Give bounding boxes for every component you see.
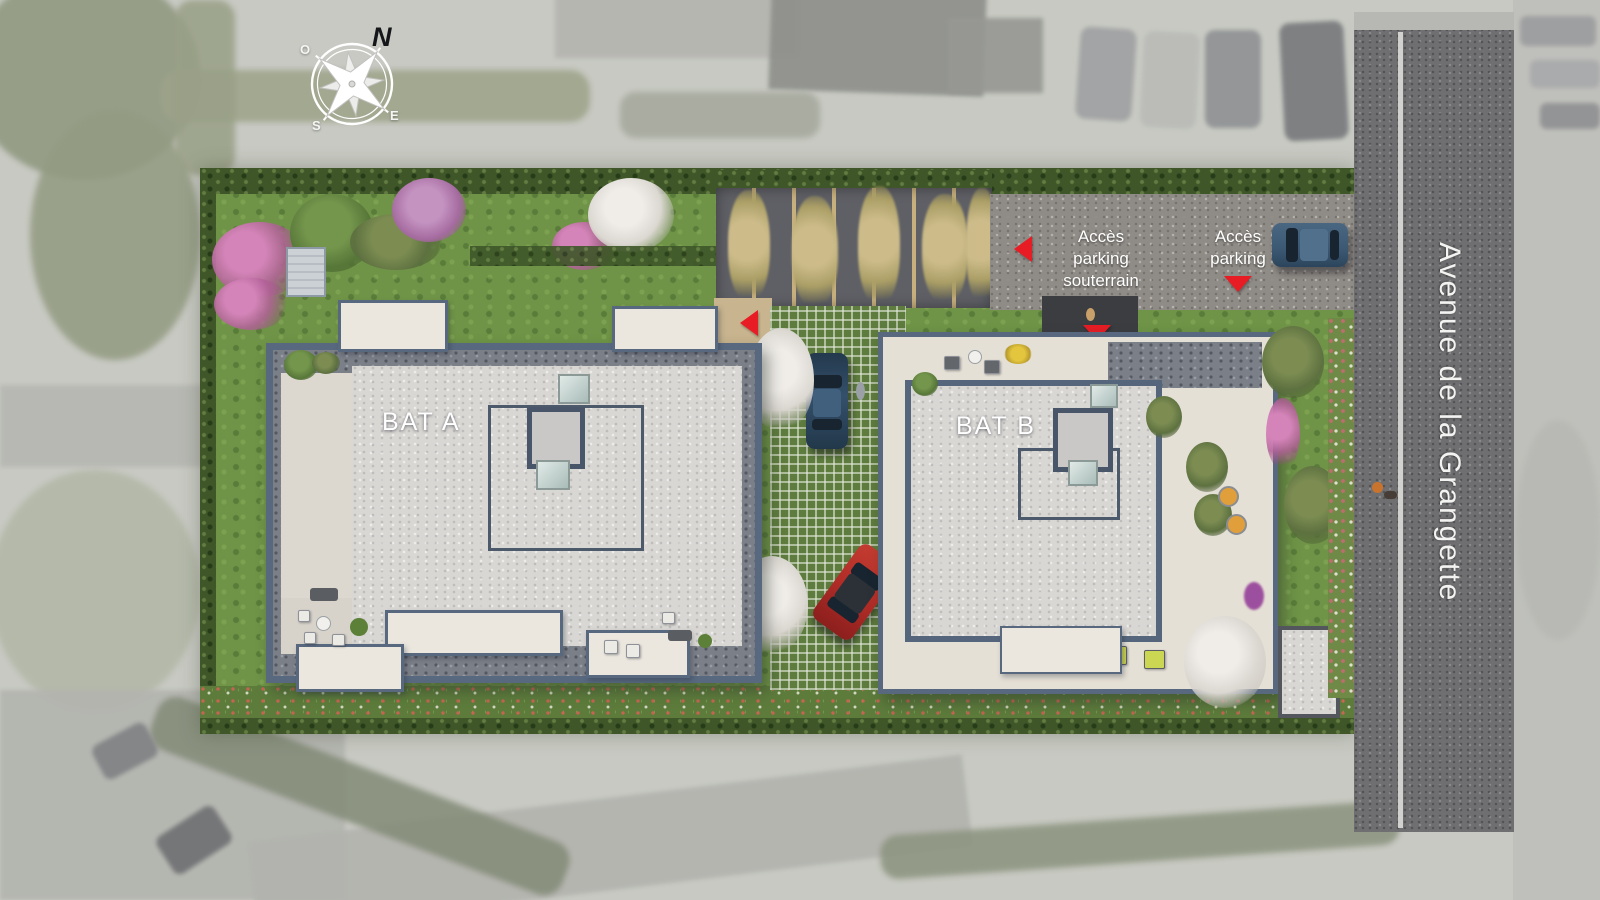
- pedestrian-with-dog: [1372, 482, 1383, 493]
- roadside-tree: [1262, 326, 1324, 398]
- access-underground-arrow-icon: [1014, 236, 1032, 262]
- pink-flowering-tree: [392, 178, 466, 242]
- garden-hedge-row: [470, 246, 720, 266]
- terrace-sofa: [310, 588, 338, 601]
- terrace-chair: [984, 360, 1000, 374]
- skylight: [1090, 384, 1118, 408]
- site-plan-image: Accès parking souterrain Accès parking: [0, 0, 1600, 900]
- building-b-label: BAT B: [956, 412, 1036, 441]
- background-parked-car: [1530, 60, 1600, 88]
- deck-tree: [1146, 396, 1182, 438]
- background-house-roof: [555, 0, 800, 58]
- skylight: [536, 460, 570, 490]
- background-parked-car: [1075, 26, 1137, 122]
- compass-west-label: O: [300, 42, 310, 57]
- compass-east-label: E: [390, 108, 399, 123]
- terrace-slab: [338, 300, 448, 352]
- background-parked-car: [1205, 30, 1261, 128]
- access-parking-arrow-icon: [1224, 276, 1252, 292]
- dog: [1384, 491, 1397, 499]
- road-top-sidewalk: [1354, 12, 1514, 30]
- terrace-table: [968, 350, 982, 364]
- pedestrian: [856, 382, 865, 400]
- parking-hedge: [716, 170, 992, 190]
- pergola-vine: [858, 186, 900, 306]
- lounge-chair-yellow: [1144, 650, 1165, 669]
- roof-planter: [912, 372, 938, 396]
- roof-planter: [312, 352, 340, 374]
- lounge-chair-orange: [1226, 514, 1247, 535]
- background-hedgerow: [175, 0, 235, 175]
- terrace-chair: [626, 644, 640, 658]
- building-a-entrance-arrow-icon: [740, 310, 758, 336]
- terrace-chair: [304, 632, 316, 644]
- access-underground-label: Accès parking souterrain: [1038, 226, 1164, 292]
- terrace-flowers-yellow: [1004, 344, 1032, 364]
- background-lawn: [0, 470, 200, 710]
- pergola-vine: [792, 196, 838, 308]
- building-a-label: BAT A: [382, 408, 461, 437]
- terrace-chair: [332, 634, 345, 646]
- street-name-label: Avenue de la Grangette: [1432, 242, 1466, 602]
- terrace-slab: [296, 644, 404, 692]
- access-parking-line2: parking: [1195, 248, 1281, 270]
- garden-shed: [286, 247, 326, 297]
- access-underground-line1: Accès: [1038, 226, 1164, 248]
- skylight: [558, 374, 590, 404]
- background-parked-van: [1279, 20, 1349, 141]
- terrace-chair: [604, 640, 618, 654]
- terrace-slab: [385, 610, 563, 656]
- pedestrian: [1086, 308, 1095, 321]
- background-parked-car: [1140, 31, 1201, 130]
- access-underground-line2: parking souterrain: [1038, 248, 1164, 292]
- white-flowering-tree: [588, 178, 674, 252]
- terrace-table: [316, 616, 331, 631]
- compass-south-label: S: [312, 118, 321, 133]
- flower-bed-purple: [1244, 582, 1264, 610]
- access-parking-line1: Accès: [1195, 226, 1281, 248]
- terrace-shrub: [350, 618, 368, 636]
- background-hedgerow: [620, 92, 820, 138]
- terrace-slab: [612, 306, 718, 352]
- background-house-roof: [948, 18, 1043, 93]
- background-parked-car: [1520, 16, 1596, 46]
- terrace-sofa: [668, 630, 692, 641]
- blue-car: [1272, 223, 1348, 267]
- road-edge-line: [1398, 32, 1403, 828]
- background-lawn: [1516, 420, 1600, 640]
- deck-tree: [1186, 442, 1228, 492]
- flower-bed: [1266, 398, 1300, 470]
- compass-north-label: N: [372, 22, 392, 53]
- background-parked-car: [1540, 103, 1600, 129]
- pergola-vine: [922, 194, 968, 304]
- terrace-slab: [1000, 626, 1122, 674]
- pergola-vine: [728, 190, 770, 302]
- white-flowering-tree: [1184, 616, 1266, 708]
- site-hedge-bottom: [200, 718, 1354, 734]
- lounge-chair-orange: [1218, 486, 1239, 507]
- roadside-flower-border: [1328, 318, 1354, 698]
- skylight: [1068, 460, 1098, 486]
- terrace-shrub: [698, 634, 712, 648]
- terrace-chair: [944, 356, 960, 370]
- terrace-chair: [662, 612, 675, 624]
- background-road: [0, 385, 205, 467]
- flower-bed: [214, 278, 289, 330]
- access-parking-label: Accès parking: [1195, 226, 1281, 270]
- terrace-chair: [298, 610, 310, 622]
